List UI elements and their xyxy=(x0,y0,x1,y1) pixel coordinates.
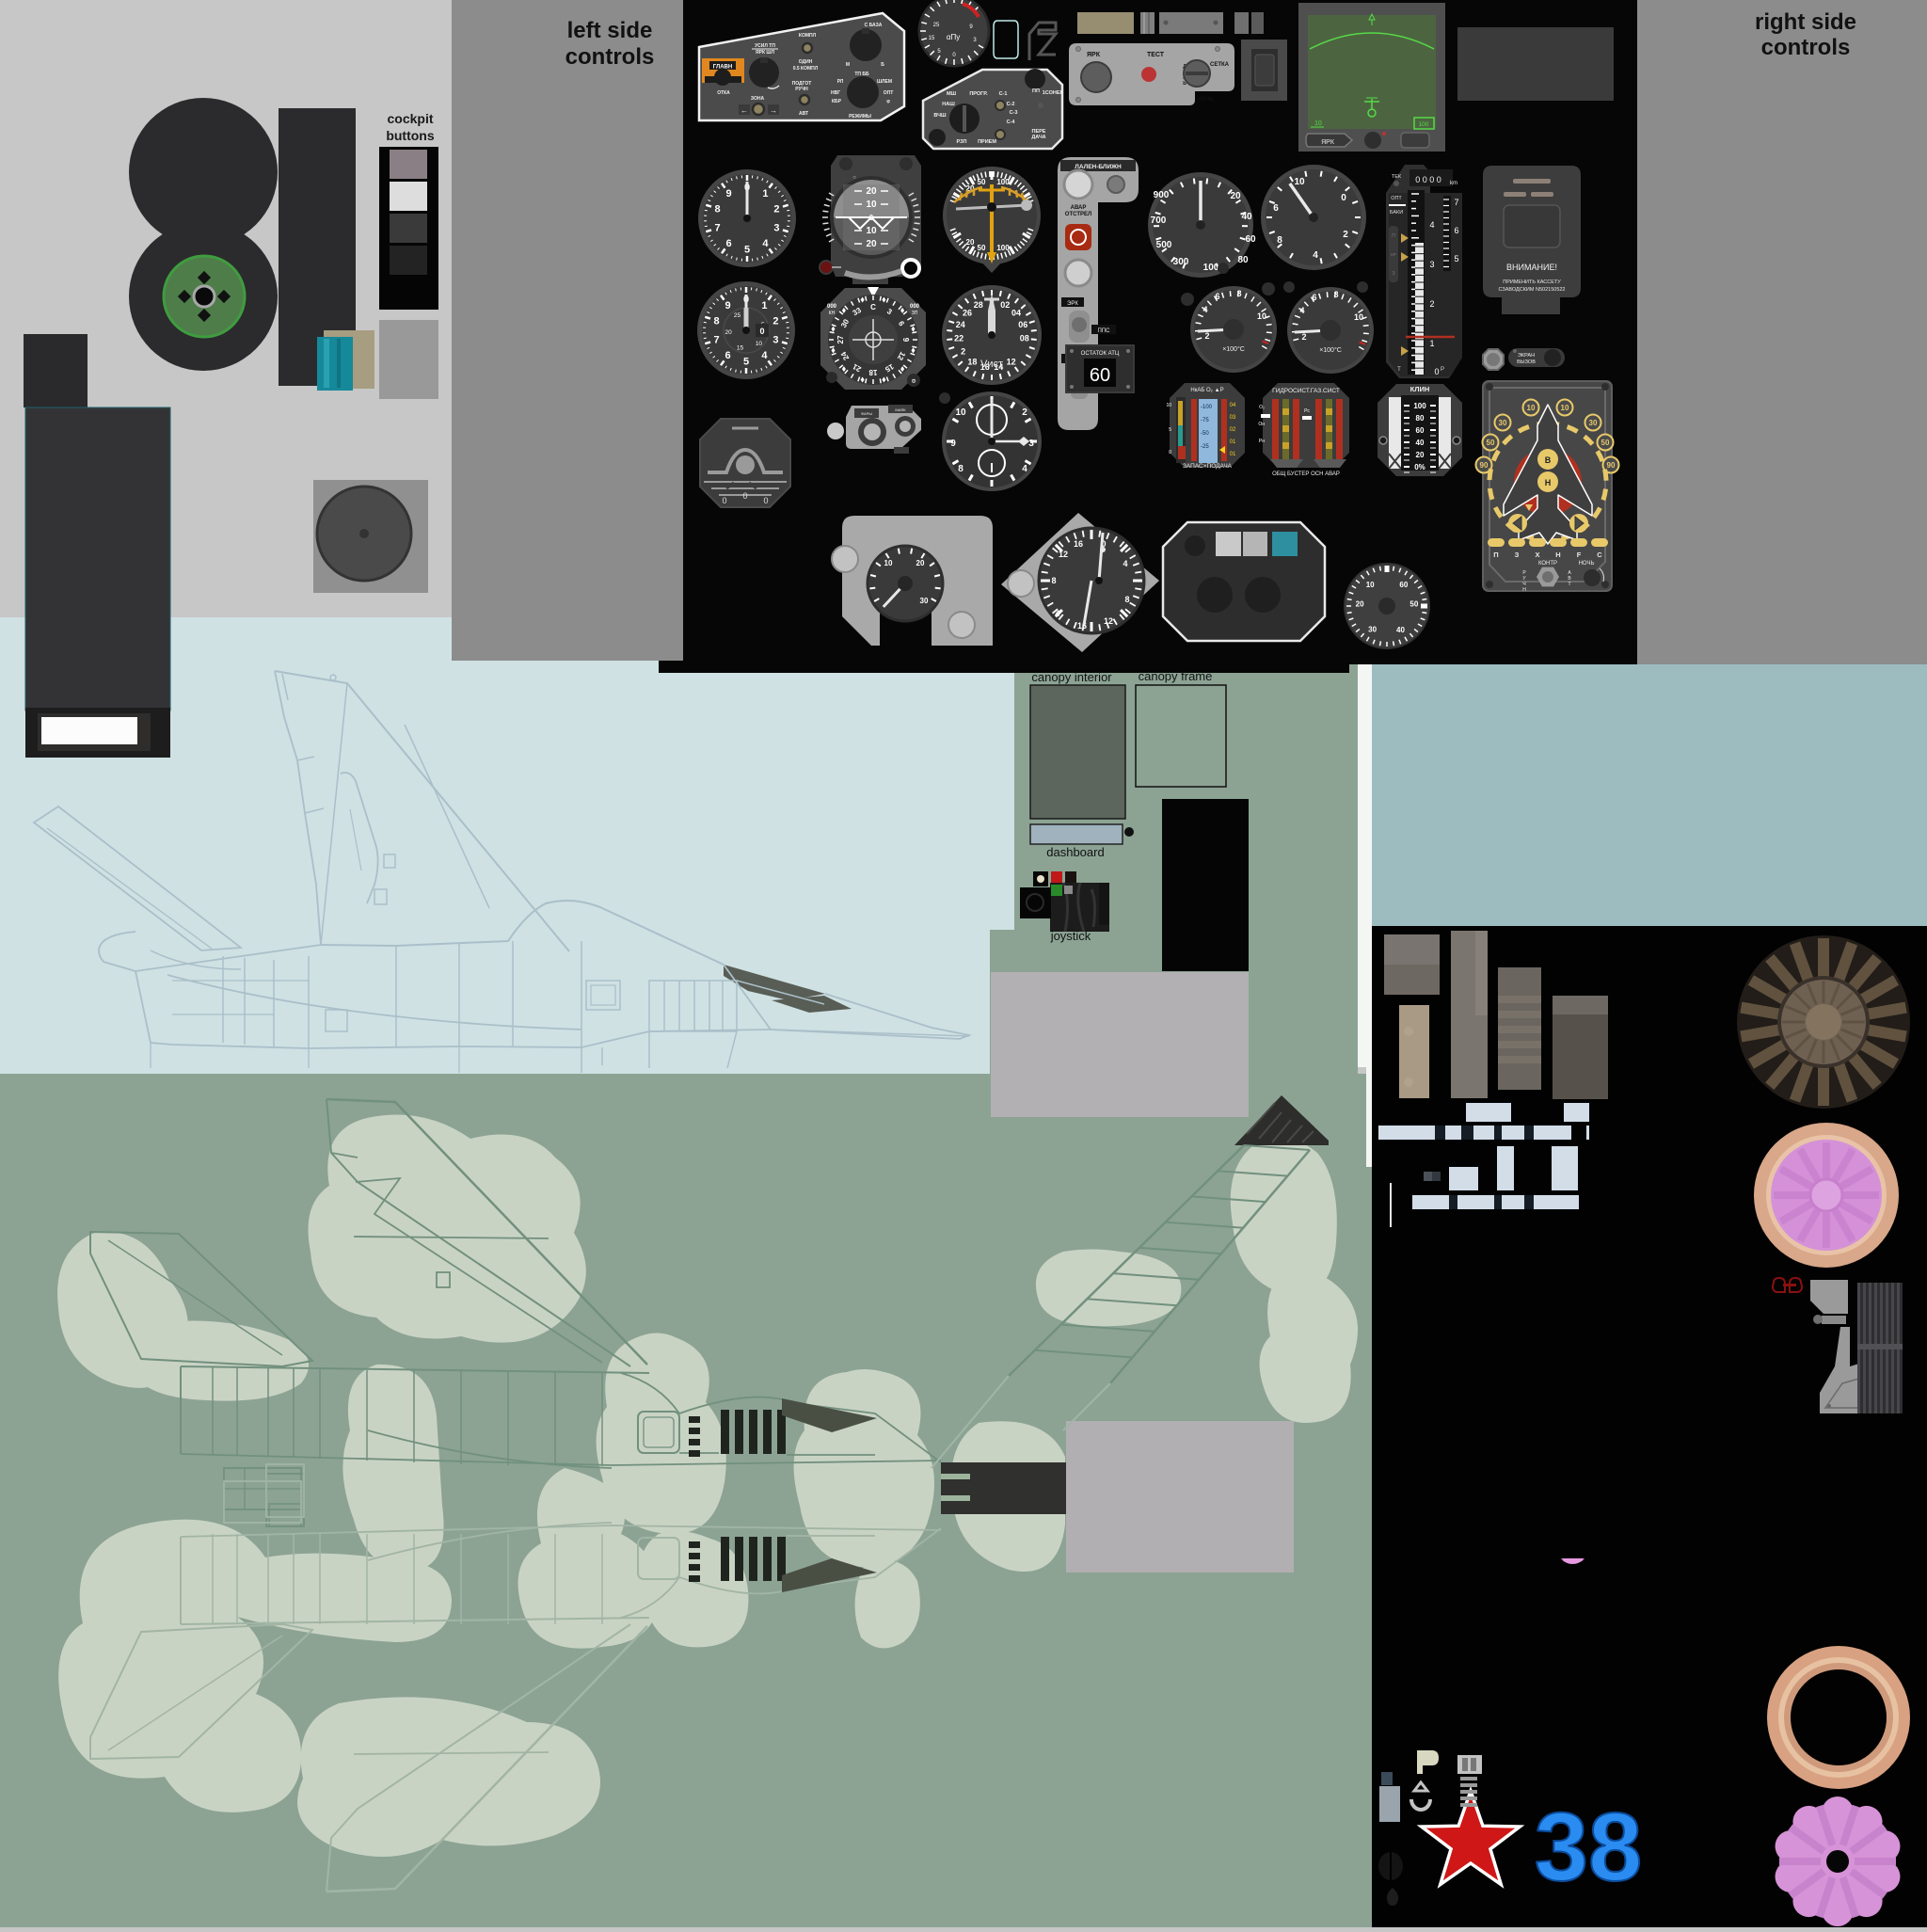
svg-text:10: 10 xyxy=(756,341,763,347)
svg-text:000: 000 xyxy=(827,304,837,310)
svg-text:ЭКРАН: ЭКРАН xyxy=(1518,353,1535,359)
svg-text:700: 700 xyxy=(1151,216,1167,226)
svg-text:РЛ: РЛ xyxy=(837,79,844,85)
svg-text:→: → xyxy=(770,106,777,115)
svg-text:ОТКА: ОТКА xyxy=(717,90,730,96)
svg-text:0 0 0 0: 0 0 0 0 xyxy=(1415,175,1441,184)
svg-text:06: 06 xyxy=(1018,320,1027,329)
svg-text:С-3: С-3 xyxy=(1010,110,1018,116)
svg-text:joystick: joystick xyxy=(1050,929,1091,943)
svg-text:С-1: С-1 xyxy=(999,91,1008,97)
svg-text:dashboard: dashboard xyxy=(1046,845,1104,859)
svg-text:-75: -75 xyxy=(1201,418,1209,423)
svg-text:Н: Н xyxy=(1522,587,1526,593)
svg-text:canopy frame: canopy frame xyxy=(1139,669,1213,683)
svg-text:9: 9 xyxy=(726,188,732,200)
svg-text:40: 40 xyxy=(1396,626,1405,634)
svg-text:10: 10 xyxy=(955,407,966,418)
svg-text:20: 20 xyxy=(866,239,877,249)
svg-text:ЯРК ШЛ: ЯРК ШЛ xyxy=(756,50,774,56)
svg-text:1: 1 xyxy=(762,188,768,200)
svg-text:СЕТКА: СЕТКА xyxy=(1210,62,1230,68)
svg-text:○: ○ xyxy=(852,175,856,181)
svg-text:С-4: С-4 xyxy=(1007,120,1016,125)
svg-text:28: 28 xyxy=(974,300,983,310)
svg-text:Н: Н xyxy=(1545,478,1552,487)
svg-text:МШ: МШ xyxy=(947,91,957,97)
svg-text:100: 100 xyxy=(1419,121,1429,128)
svg-text:4: 4 xyxy=(1055,609,1059,618)
svg-text:50: 50 xyxy=(978,244,986,252)
svg-text:20: 20 xyxy=(916,559,925,567)
svg-text:Н: Н xyxy=(1555,551,1560,559)
svg-text:buttons: buttons xyxy=(386,128,435,143)
svg-text:С-2: С-2 xyxy=(1007,102,1015,107)
svg-text:4: 4 xyxy=(1313,250,1318,261)
svg-text:10: 10 xyxy=(866,226,877,236)
svg-text:П: П xyxy=(1392,233,1395,239)
svg-text:КЛИН: КЛИН xyxy=(1410,385,1430,393)
svg-text:12: 12 xyxy=(1007,357,1016,366)
svg-text:15: 15 xyxy=(929,36,935,41)
svg-text:38: 38 xyxy=(1535,1793,1643,1901)
svg-text:16: 16 xyxy=(1074,539,1083,549)
svg-text:4: 4 xyxy=(1429,220,1434,230)
svg-text:2: 2 xyxy=(1204,331,1209,341)
svg-text:0%: 0% xyxy=(1414,463,1425,471)
svg-text:controls: controls xyxy=(1761,35,1851,60)
svg-text:КН: КН xyxy=(829,311,836,316)
svg-text:04: 04 xyxy=(1230,403,1236,408)
svg-text:2: 2 xyxy=(1301,332,1306,342)
svg-text:20: 20 xyxy=(1230,191,1241,201)
svg-text:9: 9 xyxy=(901,338,910,343)
svg-text:80: 80 xyxy=(1237,255,1249,265)
svg-text:2: 2 xyxy=(1343,230,1348,240)
svg-text:ОПТ: ОПТ xyxy=(1391,196,1402,201)
svg-text:НОЧЬ: НОЧЬ xyxy=(1579,561,1595,567)
svg-text:ОСТАТОК АТЦ: ОСТАТОК АТЦ xyxy=(1081,351,1120,357)
svg-text:ЭРК: ЭРК xyxy=(1067,301,1078,307)
svg-text:1СОНЕР: 1СОНЕР xyxy=(1043,90,1064,96)
svg-text:60: 60 xyxy=(1245,234,1256,245)
svg-text:С БАЗА: С БАЗА xyxy=(865,23,883,28)
svg-text:7: 7 xyxy=(1454,198,1458,207)
svg-text:ЯРК: ЯРК xyxy=(1087,52,1101,58)
svg-text:ОТСТРЕЛ: ОТСТРЕЛ xyxy=(1065,212,1091,217)
svg-text:30: 30 xyxy=(920,597,929,605)
svg-text:←: ← xyxy=(741,106,748,115)
svg-text:50: 50 xyxy=(1601,439,1610,447)
svg-text:РЗП: РЗП xyxy=(957,139,967,145)
svg-text:40: 40 xyxy=(1416,439,1425,447)
svg-text:10: 10 xyxy=(1527,404,1536,412)
svg-text:20: 20 xyxy=(1356,599,1364,608)
svg-text:3: 3 xyxy=(773,223,779,234)
svg-text:ДАЧА: ДАЧА xyxy=(1031,135,1045,140)
svg-text:03: 03 xyxy=(1230,415,1236,421)
svg-text:НАШ: НАШ xyxy=(942,102,955,107)
svg-text:30: 30 xyxy=(1499,419,1507,427)
svg-text:8: 8 xyxy=(958,464,963,474)
svg-text:0: 0 xyxy=(1434,367,1439,376)
svg-text:8: 8 xyxy=(1277,235,1282,246)
svg-text:27: 27 xyxy=(836,335,845,343)
svg-text:10: 10 xyxy=(1561,404,1569,412)
svg-text:20: 20 xyxy=(866,186,877,197)
svg-text:100: 100 xyxy=(1413,402,1426,410)
svg-text:ТП ББ: ТП ББ xyxy=(854,72,869,77)
svg-text:60: 60 xyxy=(1090,365,1110,386)
svg-text:В: В xyxy=(1545,455,1552,465)
svg-text:АВТ: АВТ xyxy=(799,111,808,117)
svg-text:-25: -25 xyxy=(1201,444,1209,450)
svg-text:КР: КР xyxy=(1391,252,1396,257)
svg-text:25: 25 xyxy=(734,312,741,319)
svg-text:ППС: ППС xyxy=(1098,328,1111,334)
svg-text:2: 2 xyxy=(1429,299,1434,309)
svg-text:Φ: Φ xyxy=(912,379,916,385)
svg-text:РЕЖИМЫ: РЕЖИМЫ xyxy=(849,114,871,120)
svg-text:12: 12 xyxy=(1104,616,1113,626)
svg-text:ОДИН: ОДИН xyxy=(799,59,813,65)
svg-text:15: 15 xyxy=(737,344,744,351)
svg-text:×100°C: ×100°C xyxy=(1222,345,1245,353)
svg-text:αПу: αПу xyxy=(947,33,960,41)
svg-text:3: 3 xyxy=(772,335,778,346)
svg-text:0: 0 xyxy=(1341,193,1346,203)
svg-text:04: 04 xyxy=(1011,309,1021,318)
svg-text:-50: -50 xyxy=(1201,431,1209,437)
svg-text:4: 4 xyxy=(1123,559,1127,568)
svg-text:08: 08 xyxy=(1020,334,1029,343)
svg-text:НВГ: НВГ xyxy=(831,90,840,96)
svg-text:Т: Т xyxy=(1397,367,1401,373)
svg-text:3: 3 xyxy=(1028,439,1034,449)
svg-text:0: 0 xyxy=(1169,450,1171,455)
svg-text:20: 20 xyxy=(725,329,732,336)
svg-text:10: 10 xyxy=(1366,581,1375,589)
svg-text:ВЧШ: ВЧШ xyxy=(933,113,947,119)
svg-text:ОПТ: ОПТ xyxy=(884,90,894,96)
svg-text:Рс: Рс xyxy=(1304,408,1310,414)
svg-text:8: 8 xyxy=(1236,289,1241,298)
svg-text:000: 000 xyxy=(910,304,920,310)
svg-text:СЗАВОДСКИМ N502150522: СЗАВОДСКИМ N502150522 xyxy=(1498,287,1565,293)
svg-text:100: 100 xyxy=(1203,263,1219,273)
svg-text:10: 10 xyxy=(1257,311,1266,321)
svg-text:Он: Он xyxy=(1258,422,1265,427)
svg-text:0: 0 xyxy=(763,496,768,505)
svg-text:7: 7 xyxy=(715,223,721,234)
svg-text:0.5 КОМПЛ: 0.5 КОМПЛ xyxy=(793,66,819,72)
svg-text:300: 300 xyxy=(1173,257,1189,267)
svg-text:6: 6 xyxy=(1215,292,1219,301)
svg-text:ПРИМЕНИТЬ КАССЕТУ: ПРИМЕНИТЬ КАССЕТУ xyxy=(1503,279,1561,285)
svg-text:0: 0 xyxy=(742,491,747,501)
svg-text:ШЛЕМ: ШЛЕМ xyxy=(877,79,892,85)
svg-text:8: 8 xyxy=(714,315,720,327)
svg-text:8: 8 xyxy=(715,203,721,215)
svg-text:22: 22 xyxy=(954,334,963,343)
svg-text:2: 2 xyxy=(1022,407,1027,418)
svg-text:9: 9 xyxy=(950,439,956,449)
svg-text:НОЧЬ: НОЧЬ xyxy=(1197,97,1214,103)
svg-text:КОНТР: КОНТР xyxy=(1538,561,1557,567)
svg-text:25: 25 xyxy=(933,23,940,28)
svg-text:80: 80 xyxy=(1416,414,1425,423)
svg-text:10: 10 xyxy=(1166,403,1171,408)
svg-text:0: 0 xyxy=(722,496,726,505)
svg-text:01: 01 xyxy=(1230,439,1236,445)
svg-text:4: 4 xyxy=(1299,306,1304,315)
svg-text:ОБЩ БУСТЕР ОСН АВАР: ОБЩ БУСТЕР ОСН АВАР xyxy=(1272,471,1340,477)
svg-text:6: 6 xyxy=(1454,226,1458,235)
svg-text:П: П xyxy=(1493,551,1498,559)
svg-text:ЯРК: ЯРК xyxy=(1321,139,1335,146)
svg-text:ГИДРОСИСТ.ГАЗ.СИСТ: ГИДРОСИСТ.ГАЗ.СИСТ xyxy=(1272,388,1340,394)
svg-text:Рн: Рн xyxy=(1259,439,1265,444)
svg-text:ПП: ПП xyxy=(1032,88,1040,94)
svg-text:50: 50 xyxy=(978,178,986,186)
svg-text:С: С xyxy=(870,303,876,311)
svg-text:Р: Р xyxy=(1441,367,1444,373)
svg-text:5: 5 xyxy=(743,357,749,368)
svg-text:30: 30 xyxy=(1368,626,1377,634)
svg-text:КОМПЛ: КОМПЛ xyxy=(799,33,817,39)
svg-text:left side: left side xyxy=(567,18,653,43)
svg-text:ВНИМАНИЕ!: ВНИМАНИЕ! xyxy=(1506,263,1557,272)
svg-text:6: 6 xyxy=(1273,203,1279,214)
svg-text:50: 50 xyxy=(1409,599,1418,608)
svg-text:10: 10 xyxy=(1354,312,1363,322)
svg-text:90: 90 xyxy=(1480,461,1489,470)
svg-text:×100°C: ×100°C xyxy=(1319,346,1342,354)
svg-text:100: 100 xyxy=(996,178,1010,186)
svg-text:10: 10 xyxy=(1294,177,1305,187)
svg-text:10: 10 xyxy=(1314,120,1322,127)
svg-text:ПРОГР.: ПРОГР. xyxy=(969,91,988,97)
svg-text:4: 4 xyxy=(761,350,768,361)
svg-text:БАКИ: БАКИ xyxy=(1390,210,1403,216)
svg-text:УСИЛ ТП: УСИЛ ТП xyxy=(755,43,775,49)
svg-text:02: 02 xyxy=(1000,300,1010,310)
svg-text:12: 12 xyxy=(1059,550,1068,559)
svg-text:1: 1 xyxy=(1429,339,1434,348)
svg-text:40: 40 xyxy=(1241,212,1252,222)
svg-text:Х: Х xyxy=(1535,551,1539,559)
svg-text:АВАР: АВАР xyxy=(1071,205,1087,211)
svg-text:РУЧН: РУЧН xyxy=(795,87,808,92)
svg-text:НкАБ О₂ ▲Р: НкАБ О₂ ▲Р xyxy=(1190,388,1223,393)
svg-text:100: 100 xyxy=(996,244,1010,252)
svg-text:З: З xyxy=(1515,551,1520,559)
svg-text:cockpit: cockpit xyxy=(387,111,433,126)
svg-text:Vист: Vист xyxy=(980,359,1003,370)
svg-text:10: 10 xyxy=(866,200,877,210)
svg-text:8: 8 xyxy=(1333,290,1338,299)
svg-text:5: 5 xyxy=(1169,427,1171,433)
svg-text:8: 8 xyxy=(1051,576,1056,585)
svg-text:ЗОНА: ЗОНА xyxy=(751,96,765,102)
svg-text:4: 4 xyxy=(762,238,769,249)
svg-text:2: 2 xyxy=(772,315,778,327)
svg-text:ТЕК: ТЕК xyxy=(1392,174,1402,180)
svg-text:canopy interior: canopy interior xyxy=(1031,670,1112,684)
svg-text:900: 900 xyxy=(1154,190,1170,200)
svg-text:ЗАПАС×ПОДАЧА: ЗАПАС×ПОДАЧА xyxy=(1183,463,1233,470)
svg-text:50: 50 xyxy=(1487,439,1495,447)
svg-text:4: 4 xyxy=(1202,305,1207,314)
svg-text:6: 6 xyxy=(725,350,731,361)
svg-text:3: 3 xyxy=(1429,260,1434,269)
svg-text:9: 9 xyxy=(725,300,731,311)
svg-text:26: 26 xyxy=(963,309,972,318)
svg-text:2: 2 xyxy=(961,347,965,357)
svg-text:24: 24 xyxy=(956,320,965,329)
svg-text:18: 18 xyxy=(967,357,977,366)
svg-text:20: 20 xyxy=(1416,451,1425,459)
svg-text:01: 01 xyxy=(1230,452,1236,457)
svg-text:18: 18 xyxy=(868,368,877,376)
svg-text:КБР: КБР xyxy=(832,99,842,104)
svg-text:МАЯК: МАЯК xyxy=(895,407,906,412)
svg-text:С: С xyxy=(1597,551,1602,559)
svg-text:Т: Т xyxy=(1568,582,1570,587)
svg-text:02: 02 xyxy=(1230,427,1236,433)
svg-text:ЗП: ЗП xyxy=(912,311,918,316)
svg-text:4: 4 xyxy=(1022,464,1027,474)
svg-text:ВЫЗОВ: ВЫЗОВ xyxy=(1517,359,1536,365)
svg-text:1: 1 xyxy=(761,300,767,311)
svg-text:ФАРЫ: ФАРЫ xyxy=(861,411,872,416)
svg-text:controls: controls xyxy=(565,44,655,70)
svg-text:φ: φ xyxy=(886,99,890,104)
svg-text:6: 6 xyxy=(1312,293,1316,302)
svg-text:-100: -100 xyxy=(1201,405,1213,410)
svg-text:Б: Б xyxy=(881,62,884,68)
svg-text:7: 7 xyxy=(714,335,720,346)
svg-text:30: 30 xyxy=(1589,419,1598,427)
svg-text:right side: right side xyxy=(1755,9,1856,35)
svg-text:2: 2 xyxy=(773,203,779,215)
svg-text:500: 500 xyxy=(1156,240,1172,250)
svg-text:8: 8 xyxy=(1124,595,1129,604)
svg-text:ПРИЕМ: ПРИЕМ xyxy=(978,139,996,145)
svg-text:60: 60 xyxy=(1416,426,1425,435)
svg-text:З: З xyxy=(1392,271,1394,277)
svg-text:90: 90 xyxy=(1607,461,1616,470)
svg-text:О₂: О₂ xyxy=(1259,405,1265,410)
svg-text:20: 20 xyxy=(966,238,975,247)
svg-text:10: 10 xyxy=(884,559,893,567)
svg-text:5: 5 xyxy=(1454,254,1458,263)
svg-text:60: 60 xyxy=(1399,581,1408,589)
svg-text:М: М xyxy=(846,62,850,68)
svg-text:F: F xyxy=(1577,551,1582,559)
svg-text:5: 5 xyxy=(744,245,750,256)
svg-text:6: 6 xyxy=(726,238,732,249)
svg-text:km: km xyxy=(1450,181,1457,186)
svg-text:ТЕСТ: ТЕСТ xyxy=(1147,52,1165,58)
svg-text:0: 0 xyxy=(759,327,764,336)
